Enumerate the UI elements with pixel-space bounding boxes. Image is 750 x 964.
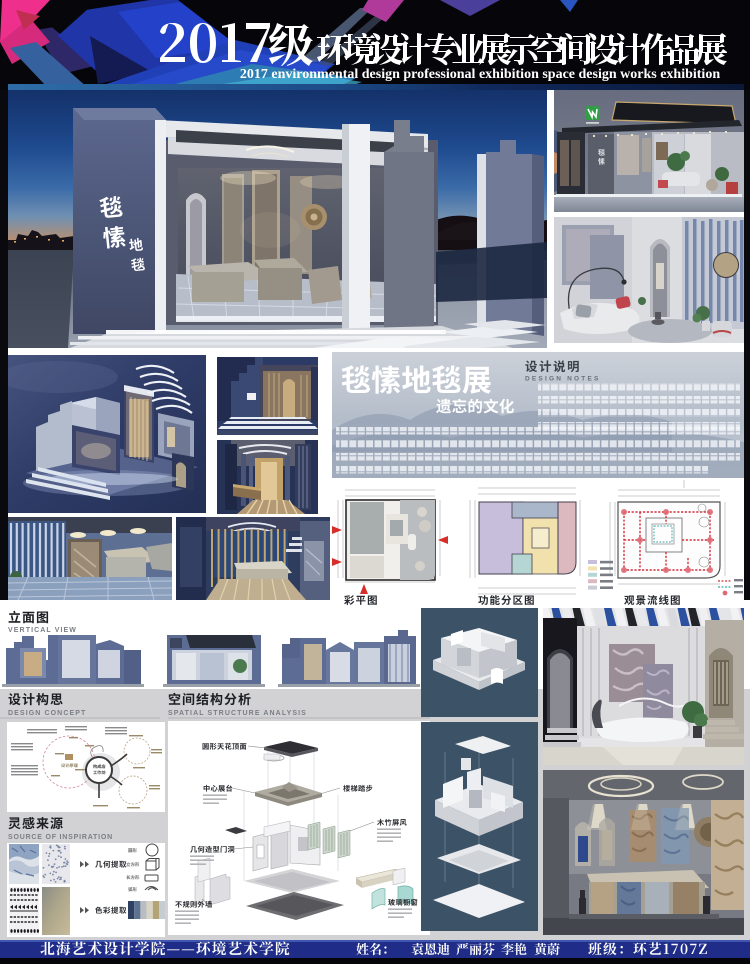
- svg-text:2017 environmental design prof: 2017 environmental design professional e…: [240, 67, 720, 82]
- svg-text:SPATIAL STRUCTURE ANALYSIS: SPATIAL STRUCTURE ANALYSIS: [168, 710, 307, 717]
- svg-text:DESIGN CONCEPT: DESIGN CONCEPT: [8, 710, 86, 717]
- svg-text:SOURCE OF INSPIRATION: SOURCE OF INSPIRATION: [8, 834, 113, 841]
- svg-text:VERTICAL VIEW: VERTICAL VIEW: [8, 627, 77, 634]
- svg-text:DESIGN NOTES: DESIGN NOTES: [525, 376, 601, 383]
